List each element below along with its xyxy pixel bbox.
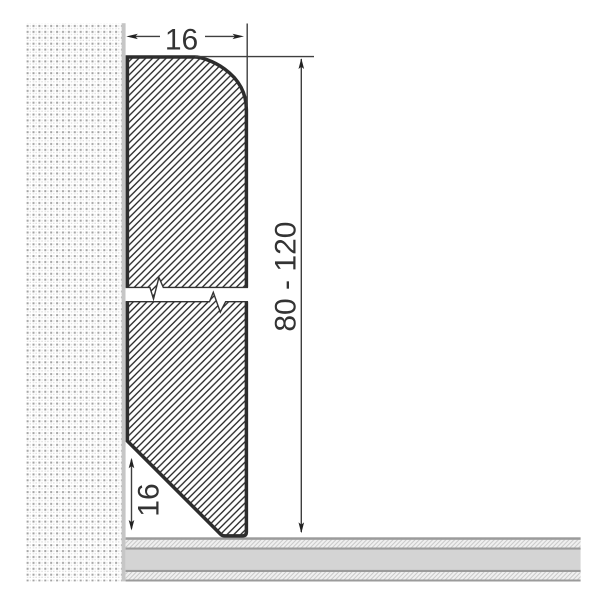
svg-text:16: 16 xyxy=(133,483,166,516)
svg-text:80 - 120: 80 - 120 xyxy=(269,222,302,332)
svg-text:16: 16 xyxy=(165,24,198,57)
